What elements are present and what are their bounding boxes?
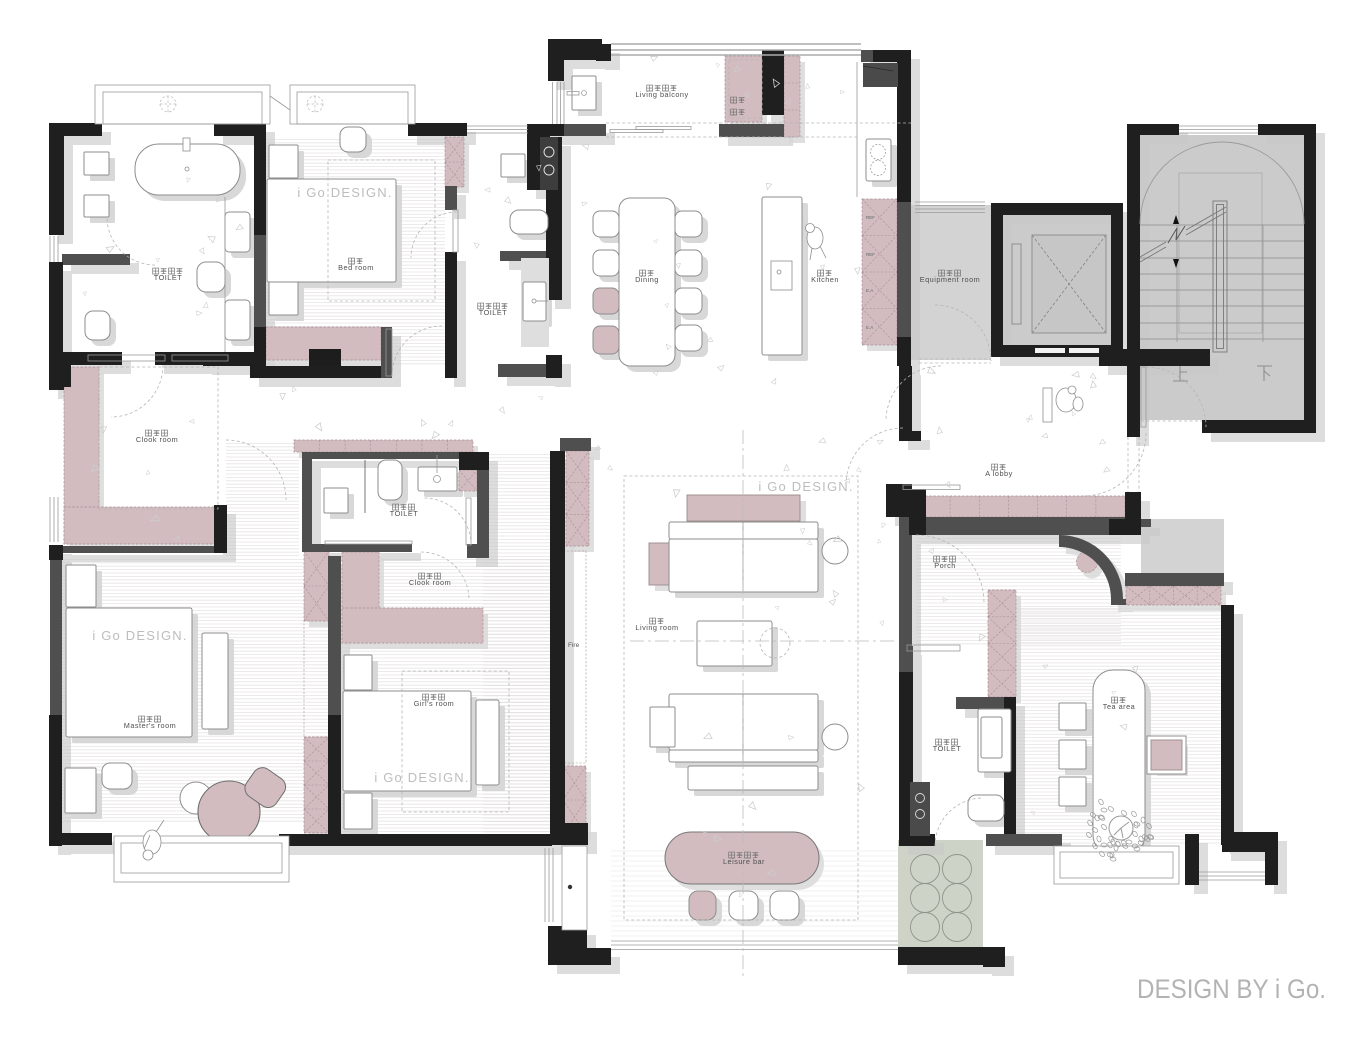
svg-text:i Go DESIGN.: i Go DESIGN.: [297, 185, 392, 200]
svg-text:TOILET: TOILET: [390, 509, 418, 518]
svg-text:Equipment room: Equipment room: [920, 275, 981, 284]
svg-text:DESIGN BY i Go.: DESIGN BY i Go.: [1137, 974, 1326, 1004]
svg-text:i Go DESIGN.: i Go DESIGN.: [92, 628, 187, 643]
svg-text:TOILET: TOILET: [479, 308, 507, 317]
svg-text:i Go DESIGN.: i Go DESIGN.: [374, 770, 469, 785]
svg-text:Living room: Living room: [635, 623, 678, 632]
svg-text:E.A: E.A: [866, 325, 873, 330]
svg-text:Clook room: Clook room: [136, 435, 178, 444]
svg-text:Porch: Porch: [934, 561, 956, 570]
svg-text:Living balcony: Living balcony: [635, 90, 688, 99]
svg-text:REF: REF: [866, 215, 875, 220]
svg-text:E.A: E.A: [866, 288, 873, 293]
svg-text:TOILET: TOILET: [933, 744, 961, 753]
svg-text:Master's room: Master's room: [124, 721, 177, 730]
svg-text:Tea area: Tea area: [1103, 702, 1136, 711]
svg-text:Fire: Fire: [568, 642, 580, 649]
svg-text:A lobby: A lobby: [985, 469, 1012, 478]
svg-text:Clook room: Clook room: [409, 578, 451, 587]
svg-text:TOILET: TOILET: [154, 273, 182, 282]
svg-text:i Go DESIGN.: i Go DESIGN.: [758, 479, 853, 494]
svg-text:Girl's room: Girl's room: [414, 699, 455, 708]
svg-text:Dining: Dining: [635, 275, 659, 284]
svg-text:REF: REF: [866, 252, 875, 257]
svg-text:Leisure bar: Leisure bar: [723, 857, 765, 866]
svg-text:Kitchen: Kitchen: [811, 275, 839, 284]
svg-text:Bed room: Bed room: [338, 263, 374, 272]
